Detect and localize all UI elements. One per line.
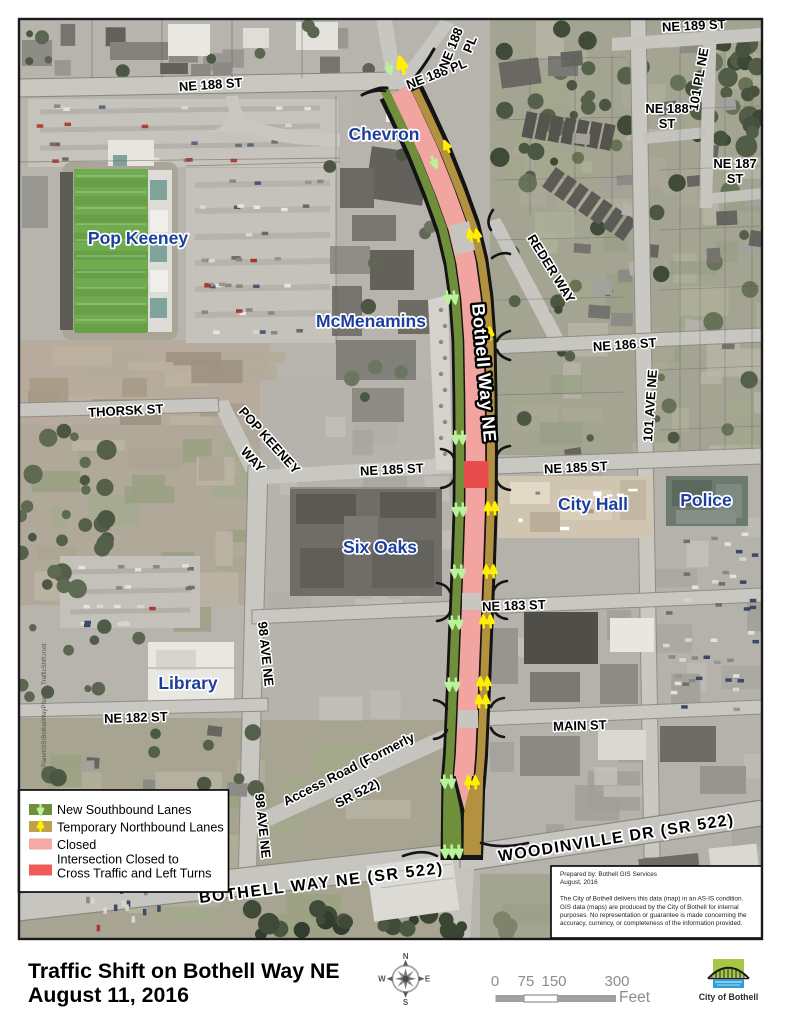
- svg-text:Six Oaks: Six Oaks: [343, 537, 417, 557]
- svg-text:NE 188: NE 188: [645, 101, 688, 116]
- svg-text:McMenamins: McMenamins: [316, 311, 426, 331]
- svg-text:August 11, 2016: August 11, 2016: [28, 983, 189, 1007]
- svg-text:The City of Bothell delivers t: The City of Bothell delivers this data (…: [560, 896, 744, 903]
- svg-text:August, 2016: August, 2016: [560, 879, 598, 886]
- svg-text:N: N: [403, 952, 409, 961]
- svg-text:New Southbound Lanes: New Southbound Lanes: [57, 803, 191, 817]
- svg-text:NE 187: NE 187: [713, 156, 756, 171]
- svg-text:W: W: [378, 975, 386, 984]
- svg-text:E: E: [425, 975, 431, 984]
- svg-text:Temporary Northbound Lanes: Temporary Northbound Lanes: [57, 821, 224, 835]
- svg-text:Police: Police: [680, 490, 732, 510]
- svg-text:Feet: Feet: [619, 989, 651, 1006]
- svg-text:Pop Keeney: Pop Keeney: [88, 228, 188, 248]
- svg-text:accuracy, currency, or complet: accuracy, currency, or completeness of t…: [560, 920, 743, 927]
- svg-text:300: 300: [604, 973, 629, 990]
- svg-text:City of Bothell: City of Bothell: [699, 992, 759, 1002]
- svg-text:E:\PlanetGIS\BothellWayPhase2_: E:\PlanetGIS\BothellWayPhase2_TrafficShi…: [42, 643, 48, 775]
- svg-text:City Hall: City Hall: [558, 494, 628, 514]
- svg-text:S: S: [403, 998, 409, 1007]
- svg-text:Chevron: Chevron: [349, 124, 420, 144]
- svg-text:Intersection Closed to: Intersection Closed to: [57, 853, 179, 867]
- svg-text:purposes. No representation o: purposes. No representation or guarantee…: [560, 912, 747, 919]
- svg-text:NE 183 ST: NE 183 ST: [482, 597, 546, 614]
- svg-text:GIS data (maps) are produced b: GIS data (maps) are produced by the City…: [560, 904, 739, 911]
- svg-text:150: 150: [541, 973, 566, 990]
- svg-text:Library: Library: [158, 673, 218, 693]
- svg-text:Closed: Closed: [57, 838, 96, 852]
- svg-text:Traffic Shift on Bothell Way N: Traffic Shift on Bothell Way NE: [28, 959, 340, 983]
- svg-text:Cross Traffic and Left Turns: Cross Traffic and Left Turns: [57, 867, 211, 881]
- svg-text:MAIN ST: MAIN ST: [553, 717, 607, 734]
- svg-text:Prepared by: Bothell GIS Servi: Prepared by: Bothell GIS Services: [560, 871, 657, 878]
- svg-text:0: 0: [491, 973, 499, 990]
- svg-text:ST: ST: [659, 116, 676, 131]
- svg-text:75: 75: [518, 973, 535, 990]
- svg-text:NE 182 ST: NE 182 ST: [104, 709, 168, 726]
- svg-text:ST: ST: [727, 171, 744, 186]
